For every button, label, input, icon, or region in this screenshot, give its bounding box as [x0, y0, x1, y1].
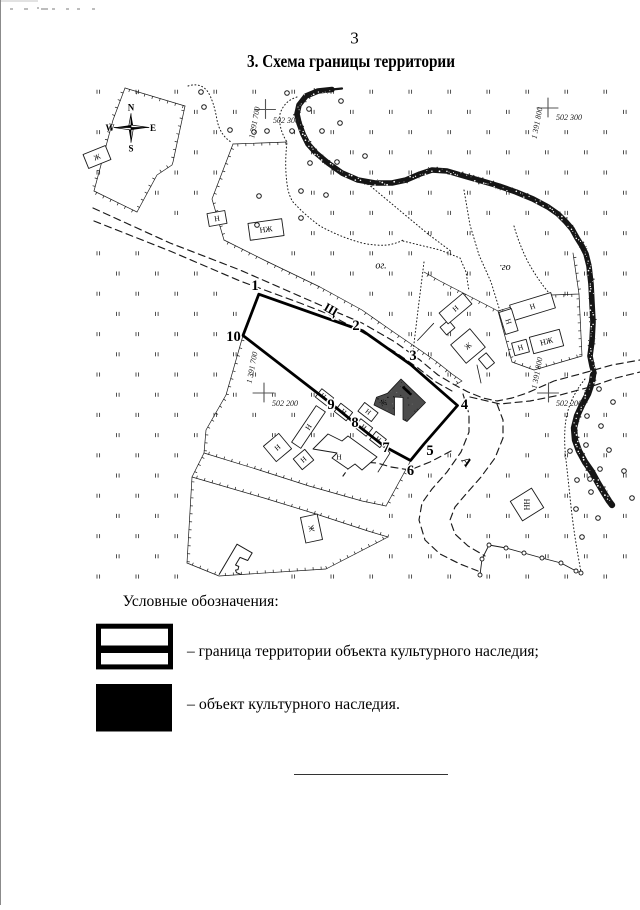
svg-text:2: 2: [352, 318, 359, 334]
svg-text:502 200: 502 200: [272, 399, 298, 408]
svg-text:НЖ: НЖ: [259, 224, 274, 235]
svg-text:502 300: 502 300: [556, 113, 582, 122]
svg-text:Н: Н: [336, 453, 342, 462]
svg-text:W: W: [106, 123, 115, 133]
svg-text:– объект культурного наследия.: – объект культурного наследия.: [186, 696, 400, 713]
svg-text:E: E: [150, 123, 156, 133]
svg-text:10: 10: [226, 329, 241, 345]
svg-text:Условные обозначения:: Условные обозначения:: [123, 593, 279, 610]
svg-text:8: 8: [351, 415, 358, 431]
svg-text:S: S: [128, 144, 133, 154]
svg-text:3: 3: [409, 348, 416, 364]
svg-text:6: 6: [407, 463, 414, 479]
svg-text:5: 5: [426, 443, 433, 459]
svg-text:3. Схема границы территории: 3. Схема границы территории: [247, 51, 455, 71]
svg-text:502 200: 502 200: [556, 399, 582, 408]
svg-text:502 300: 502 300: [273, 116, 299, 125]
svg-text:7: 7: [382, 440, 389, 456]
svg-text:1: 1: [251, 278, 258, 294]
svg-text:3: 3: [350, 29, 359, 48]
svg-text:9: 9: [327, 397, 334, 413]
svg-text:НН: НН: [523, 499, 532, 511]
svg-text:ог.: ог.: [375, 261, 386, 272]
svg-text:4: 4: [461, 397, 468, 413]
svg-text:– граница территории объекта к: – граница территории объекта культурного…: [186, 643, 539, 660]
svg-text:N: N: [128, 103, 135, 113]
svg-text:ог.: ог.: [499, 262, 510, 273]
